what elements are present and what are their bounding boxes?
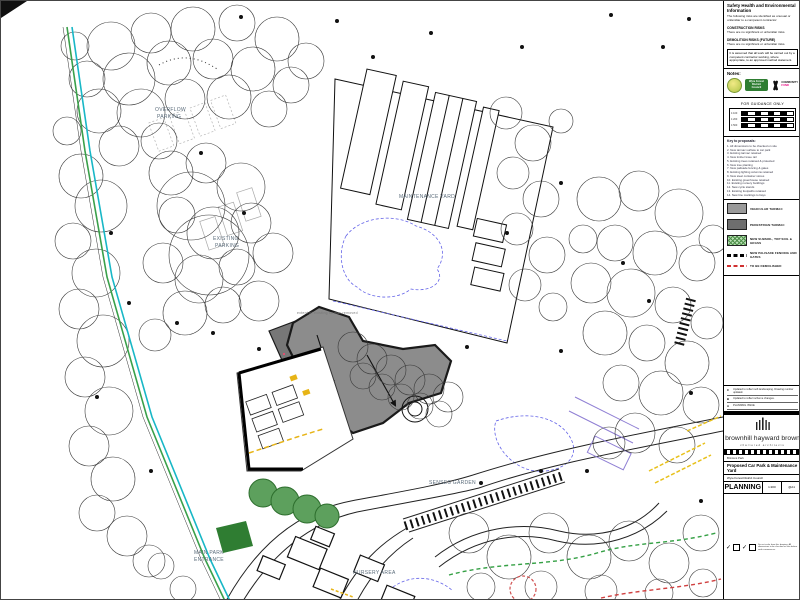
legend-label: NEW PALISADE FENCING AND GATES	[750, 251, 798, 259]
notes-heading: Notes:	[727, 71, 798, 76]
scale-bar	[741, 111, 794, 116]
site-plan-drawing: OVERFLOW PARKING EXISTING PARKING MAINTE…	[1, 1, 723, 600]
maintenance-sheds	[326, 69, 540, 291]
check-icon: ✓	[742, 545, 747, 551]
legend-label: VEHICULAR TARMAC	[750, 207, 783, 211]
purple-structures	[569, 397, 639, 470]
legend-label: NEW SUBSOIL, TOP SOIL & GRASS	[750, 237, 798, 245]
label-main-park-entrance-2: ENTRANCE	[194, 557, 224, 563]
steps-ramp	[403, 299, 691, 532]
site-boundary	[63, 27, 230, 600]
revision-text: PLANNING ISSUE	[733, 404, 798, 408]
scale-cell: 1:200	[763, 482, 783, 493]
copyright-smallprint: Do not scale from this drawing. All dime…	[758, 544, 799, 552]
vehicular-tarmac-swatch	[727, 203, 747, 214]
scalebar-label: 1:500	[731, 124, 739, 127]
scale-bar	[741, 117, 794, 122]
legend-label: PEDESTRIAN TARMAC	[750, 223, 785, 227]
checks-row: ✓ ✓ Do not scale from this drawing. All …	[724, 494, 800, 600]
architect-name: brownhill hayward brown	[725, 435, 800, 442]
legend-item-vehicular: VEHICULAR TARMAC	[727, 203, 798, 214]
community-fund-line2: FUND	[781, 85, 798, 88]
checkbox-icon	[749, 544, 756, 551]
label-main-park-entrance: MAIN PARK	[194, 550, 224, 556]
construction-risks-text: There are no significant or unfamiliar r…	[727, 31, 798, 35]
check-icon: ✓	[726, 545, 731, 551]
legend-label: TO BE DEMOLISHED	[750, 264, 782, 268]
client-name: Wyre Forest District Council	[724, 475, 800, 482]
revision-text: Updated to reflect scheme changes.	[733, 397, 798, 401]
revision-text: Updated to reflect soft landscaping. Dra…	[733, 388, 798, 394]
scale-section: FOR GUIDANCE ONLY 1:100 1:200 1:500	[724, 98, 800, 138]
demolition-circle	[510, 576, 536, 600]
scalebar-label: 1:100	[731, 112, 739, 115]
project-label: Brintons Park	[724, 455, 800, 462]
status-row: PLANNING 1:200 @A1	[724, 482, 800, 494]
revision-letter: C	[727, 388, 731, 394]
scalebar-label: 1:200	[731, 118, 739, 121]
tree-trunk-dots	[95, 13, 703, 503]
route-lines	[449, 416, 721, 598]
assumption-note: It is assumed that all work will be carr…	[727, 49, 798, 65]
label-overflow-parking-2: PARKING	[157, 114, 181, 120]
crossed-fingers-icon	[771, 80, 780, 91]
palisade-fence-swatch	[727, 254, 747, 257]
architect-logo-icon	[753, 417, 773, 430]
safety-intro: The following risks are identified as un…	[727, 15, 798, 23]
revision-table: C Updated to reflect soft landscaping. D…	[724, 385, 800, 412]
checkbox-icon	[733, 544, 740, 551]
legend-section: VEHICULAR TARMAC PEDESTRIAN TARMAC NEW S…	[724, 200, 800, 276]
key-heading: Key to proposals:	[727, 139, 798, 143]
legend-item-demolished: TO BE DEMOLISHED	[727, 264, 798, 268]
scale-bar	[741, 123, 794, 128]
scale-bars: 1:100 1:200 1:500	[729, 108, 796, 132]
grass-swatch	[727, 235, 747, 246]
corner-wedge	[1, 1, 27, 18]
revision-letter: B	[727, 397, 731, 401]
heritage-roundel-logo-icon	[727, 78, 742, 93]
architect-tagline: chartered architects	[725, 443, 800, 447]
wyre-logo-line2: District Council	[747, 84, 766, 90]
revision-row: C Updated to reflect soft landscaping. D…	[727, 387, 798, 396]
label-existing-parking-2: PARKING	[215, 243, 239, 249]
revision-row: B Updated to reflect scheme changes.	[727, 396, 798, 403]
community-fund-logo: COMMUNITY FUND	[771, 80, 798, 91]
pedestrian-tarmac-swatch	[727, 219, 747, 230]
legend-item-pedestrian: PEDESTRIAN TARMAC	[727, 219, 798, 230]
demolition-risks-heading: DEMOLITION RISKS (FUTURE)	[727, 38, 798, 42]
safety-section: Safety Health and Environmental Informat…	[724, 1, 800, 69]
demolition-risks-text: There are no significant or unfamiliar r…	[727, 43, 798, 47]
nursery-buildings	[257, 512, 449, 600]
label-existing-parking: EXISTING	[213, 236, 239, 242]
key-list: 1. All dimensions to be checked on site2…	[727, 145, 798, 198]
architect-block: brownhill hayward brown chartered archit…	[724, 415, 800, 450]
demolished-swatch	[727, 265, 747, 267]
notes-section: Notes: Wyre Forest District Council COMM…	[724, 69, 800, 98]
logos-row: Wyre Forest District Council COMMUNITY F…	[727, 78, 798, 93]
size-cell: @A1	[782, 482, 800, 493]
label-senses-garden: SENSES GARDEN	[429, 480, 476, 486]
panel-spacer	[724, 276, 800, 385]
label-tarmac-note: extent of existing tarmac removed	[297, 311, 358, 315]
legend-item-grass: NEW SUBSOIL, TOP SOIL & GRASS	[727, 235, 798, 246]
guidance-text: FOR GUIDANCE ONLY	[727, 102, 798, 106]
legend-item-fence: NEW PALISADE FENCING AND GATES	[727, 251, 798, 259]
label-overflow-parking: OVERFLOW	[155, 107, 186, 113]
drawing-sheet: OVERFLOW PARKING EXISTING PARKING MAINTE…	[0, 0, 800, 600]
label-nursery-area: NURSERY AREA	[353, 570, 396, 576]
wyre-forest-logo: Wyre Forest District Council	[745, 79, 768, 91]
safety-title: Safety Health and Environmental Informat…	[727, 3, 798, 13]
title-block-panel: Safety Health and Environmental Informat…	[723, 1, 800, 600]
key-item: 14. New line markings to bays	[727, 194, 798, 198]
key-section: Key to proposals: 1. All dimensions to b…	[724, 137, 800, 200]
revision-row: A PLANNING ISSUE	[727, 403, 798, 410]
status-badge: PLANNING	[724, 482, 763, 493]
revision-letter: A	[727, 404, 731, 408]
dotted-arc	[159, 58, 217, 69]
label-maintenance-yard: MAINTENANCE YARD	[399, 194, 455, 200]
drawing-title: Proposed Car Park & Maintenance Yard	[724, 462, 800, 475]
